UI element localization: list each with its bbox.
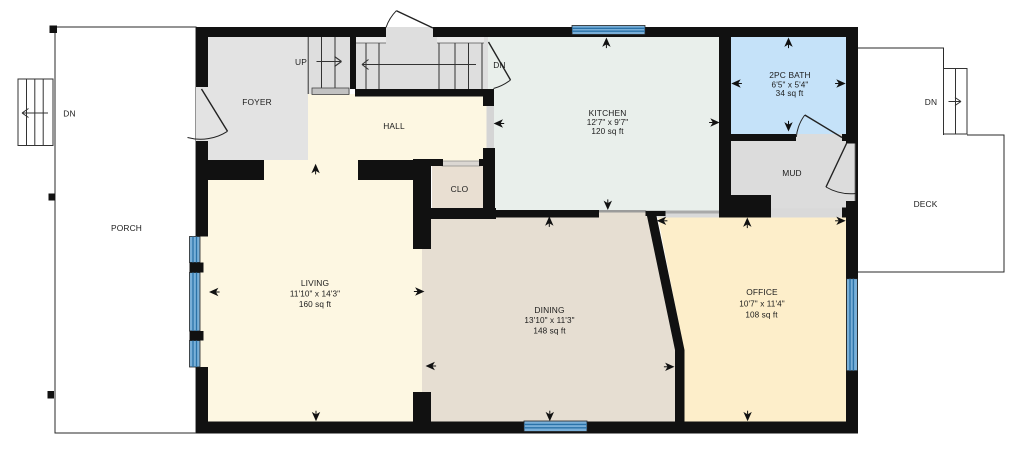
svg-text:120 sq ft: 120 sq ft: [591, 127, 624, 136]
svg-text:DN: DN: [493, 60, 505, 70]
svg-text:DINING: DINING: [534, 305, 564, 315]
svg-text:34 sq ft: 34 sq ft: [776, 89, 804, 98]
svg-text:DN: DN: [63, 108, 75, 118]
svg-text:12'7" x 9'7": 12'7" x 9'7": [587, 118, 629, 127]
svg-text:2PC BATH: 2PC BATH: [769, 70, 811, 80]
svg-text:DN: DN: [925, 97, 937, 107]
svg-text:DECK: DECK: [914, 199, 938, 209]
svg-text:FOYER: FOYER: [242, 97, 272, 107]
svg-text:LIVING: LIVING: [301, 278, 329, 288]
svg-text:CLO: CLO: [451, 184, 469, 194]
svg-text:13'10" x 11'3": 13'10" x 11'3": [524, 316, 574, 325]
svg-text:UP: UP: [295, 57, 307, 67]
svg-text:HALL: HALL: [383, 121, 405, 131]
svg-text:11'10" x 14'3": 11'10" x 14'3": [290, 289, 340, 298]
svg-text:10'7" x 11'4": 10'7" x 11'4": [739, 299, 785, 308]
svg-text:PORCH: PORCH: [111, 223, 142, 233]
svg-text:OFFICE: OFFICE: [746, 287, 778, 297]
svg-text:148 sq ft: 148 sq ft: [533, 326, 566, 335]
svg-text:MUD: MUD: [782, 168, 802, 178]
svg-text:108 sq ft: 108 sq ft: [745, 310, 778, 319]
svg-text:KITCHEN: KITCHEN: [589, 108, 627, 118]
svg-text:160 sq ft: 160 sq ft: [299, 300, 332, 309]
